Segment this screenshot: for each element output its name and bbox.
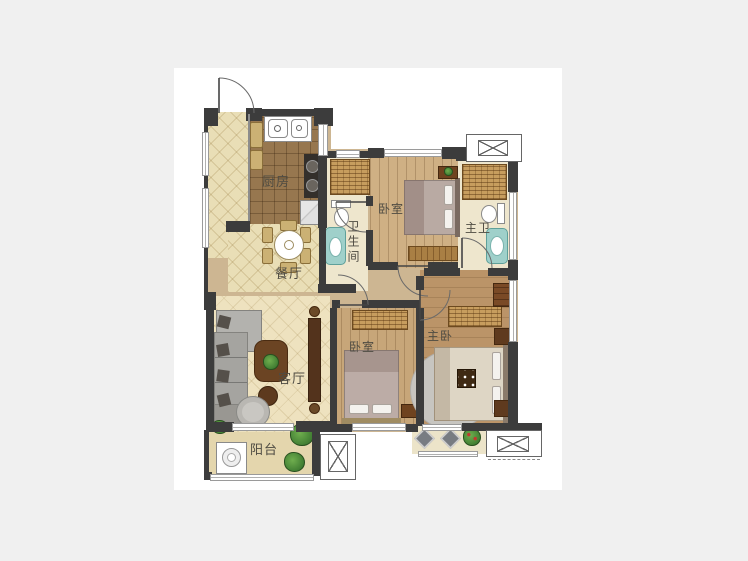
wall-segment [508, 158, 518, 192]
wall-segment [332, 300, 340, 308]
window [336, 150, 360, 158]
headboard [455, 178, 460, 237]
wall-segment [366, 196, 373, 206]
ac-unit-icon [328, 441, 348, 472]
wall-segment [366, 230, 373, 266]
wall-segment [368, 148, 384, 158]
wall-segment [406, 424, 418, 432]
bedroom-bench [408, 246, 458, 261]
sink-drain-icon [274, 125, 281, 132]
wall-segment [206, 422, 234, 432]
sofa-pillow [216, 343, 230, 357]
toilet-tank-icon [331, 200, 351, 208]
kitchen-label: 厨房 [262, 176, 290, 189]
wall-segment [312, 430, 320, 476]
wardrobe-hatch-icon [448, 306, 502, 327]
wall-segment [204, 108, 218, 126]
speaker-icon [309, 403, 320, 414]
wall-segment [330, 308, 337, 428]
pillow-icon [444, 209, 453, 229]
window [318, 124, 328, 156]
wall-segment [330, 424, 352, 432]
toilet-tank-icon [497, 203, 505, 224]
plant-icon [284, 452, 305, 472]
window [418, 451, 478, 457]
washer-door-icon [227, 453, 236, 462]
window [509, 280, 517, 342]
plant-icon [444, 167, 453, 176]
window [202, 188, 209, 248]
wardrobe-hatch-icon [330, 159, 370, 195]
bedroom-top-label: 卧室 [378, 203, 404, 215]
window [384, 149, 442, 157]
window [202, 132, 209, 176]
window [232, 423, 294, 431]
wall-line [248, 114, 250, 224]
master-bedroom-label: 主卧 [427, 330, 453, 342]
pillow-icon [444, 185, 453, 205]
dining-table-center [284, 240, 294, 250]
wall-segment [262, 109, 318, 116]
wall-segment [204, 430, 209, 476]
wall-segment [416, 276, 424, 290]
kitchen-cabinet [250, 122, 263, 148]
wall-segment [318, 156, 327, 228]
wall-segment [319, 228, 326, 286]
speaker-icon [309, 306, 320, 317]
window [509, 192, 517, 260]
plant-icon [263, 354, 279, 370]
pillow-icon [349, 404, 369, 414]
pillow-icon [372, 404, 392, 414]
bathroom-label: 卫生间 [347, 220, 359, 265]
shower-basin-icon [490, 236, 504, 256]
pillow-icon [492, 352, 501, 380]
bed-tray-icon [457, 369, 476, 388]
wall-segment [368, 262, 398, 270]
screenshot-background: 厨房 餐厅 卫生间 卧室 主卫 客厅 卧室 主卧 阳台 [0, 0, 748, 561]
balcony-label: 阳台 [250, 444, 278, 457]
sofa-pillow [216, 369, 230, 383]
wall-segment [206, 308, 214, 424]
ac-unit-icon [478, 140, 508, 156]
wall-segment [318, 284, 356, 293]
wall-segment [416, 308, 424, 426]
dining-chair [262, 248, 273, 264]
window [422, 424, 462, 431]
sink-drain-icon [296, 125, 302, 131]
bathtub-basin-icon [329, 237, 342, 257]
wall-segment [424, 268, 460, 276]
ac-dashed-line [488, 459, 540, 460]
tv-cabinet-icon [308, 318, 321, 402]
wall-segment [226, 221, 250, 232]
dining-label: 餐厅 [275, 268, 303, 281]
armchair-seat [242, 402, 264, 422]
bedroom-bottom-label: 卧室 [349, 341, 375, 353]
wardrobe-hatch-icon [352, 310, 408, 330]
wall-segment [362, 300, 420, 308]
wall-segment [488, 268, 510, 276]
wall-segment [508, 342, 518, 432]
window [210, 474, 314, 481]
dining-chair [262, 227, 273, 243]
master-bathroom-label: 主卫 [465, 222, 491, 234]
ac-unit-icon [497, 436, 529, 452]
kitchen-cabinet [250, 150, 263, 170]
living-room-label: 客厅 [278, 373, 306, 386]
window [352, 423, 406, 431]
bed-blanket [404, 180, 424, 235]
bed-blanket [434, 347, 450, 421]
wardrobe-hatch-icon [462, 164, 507, 200]
